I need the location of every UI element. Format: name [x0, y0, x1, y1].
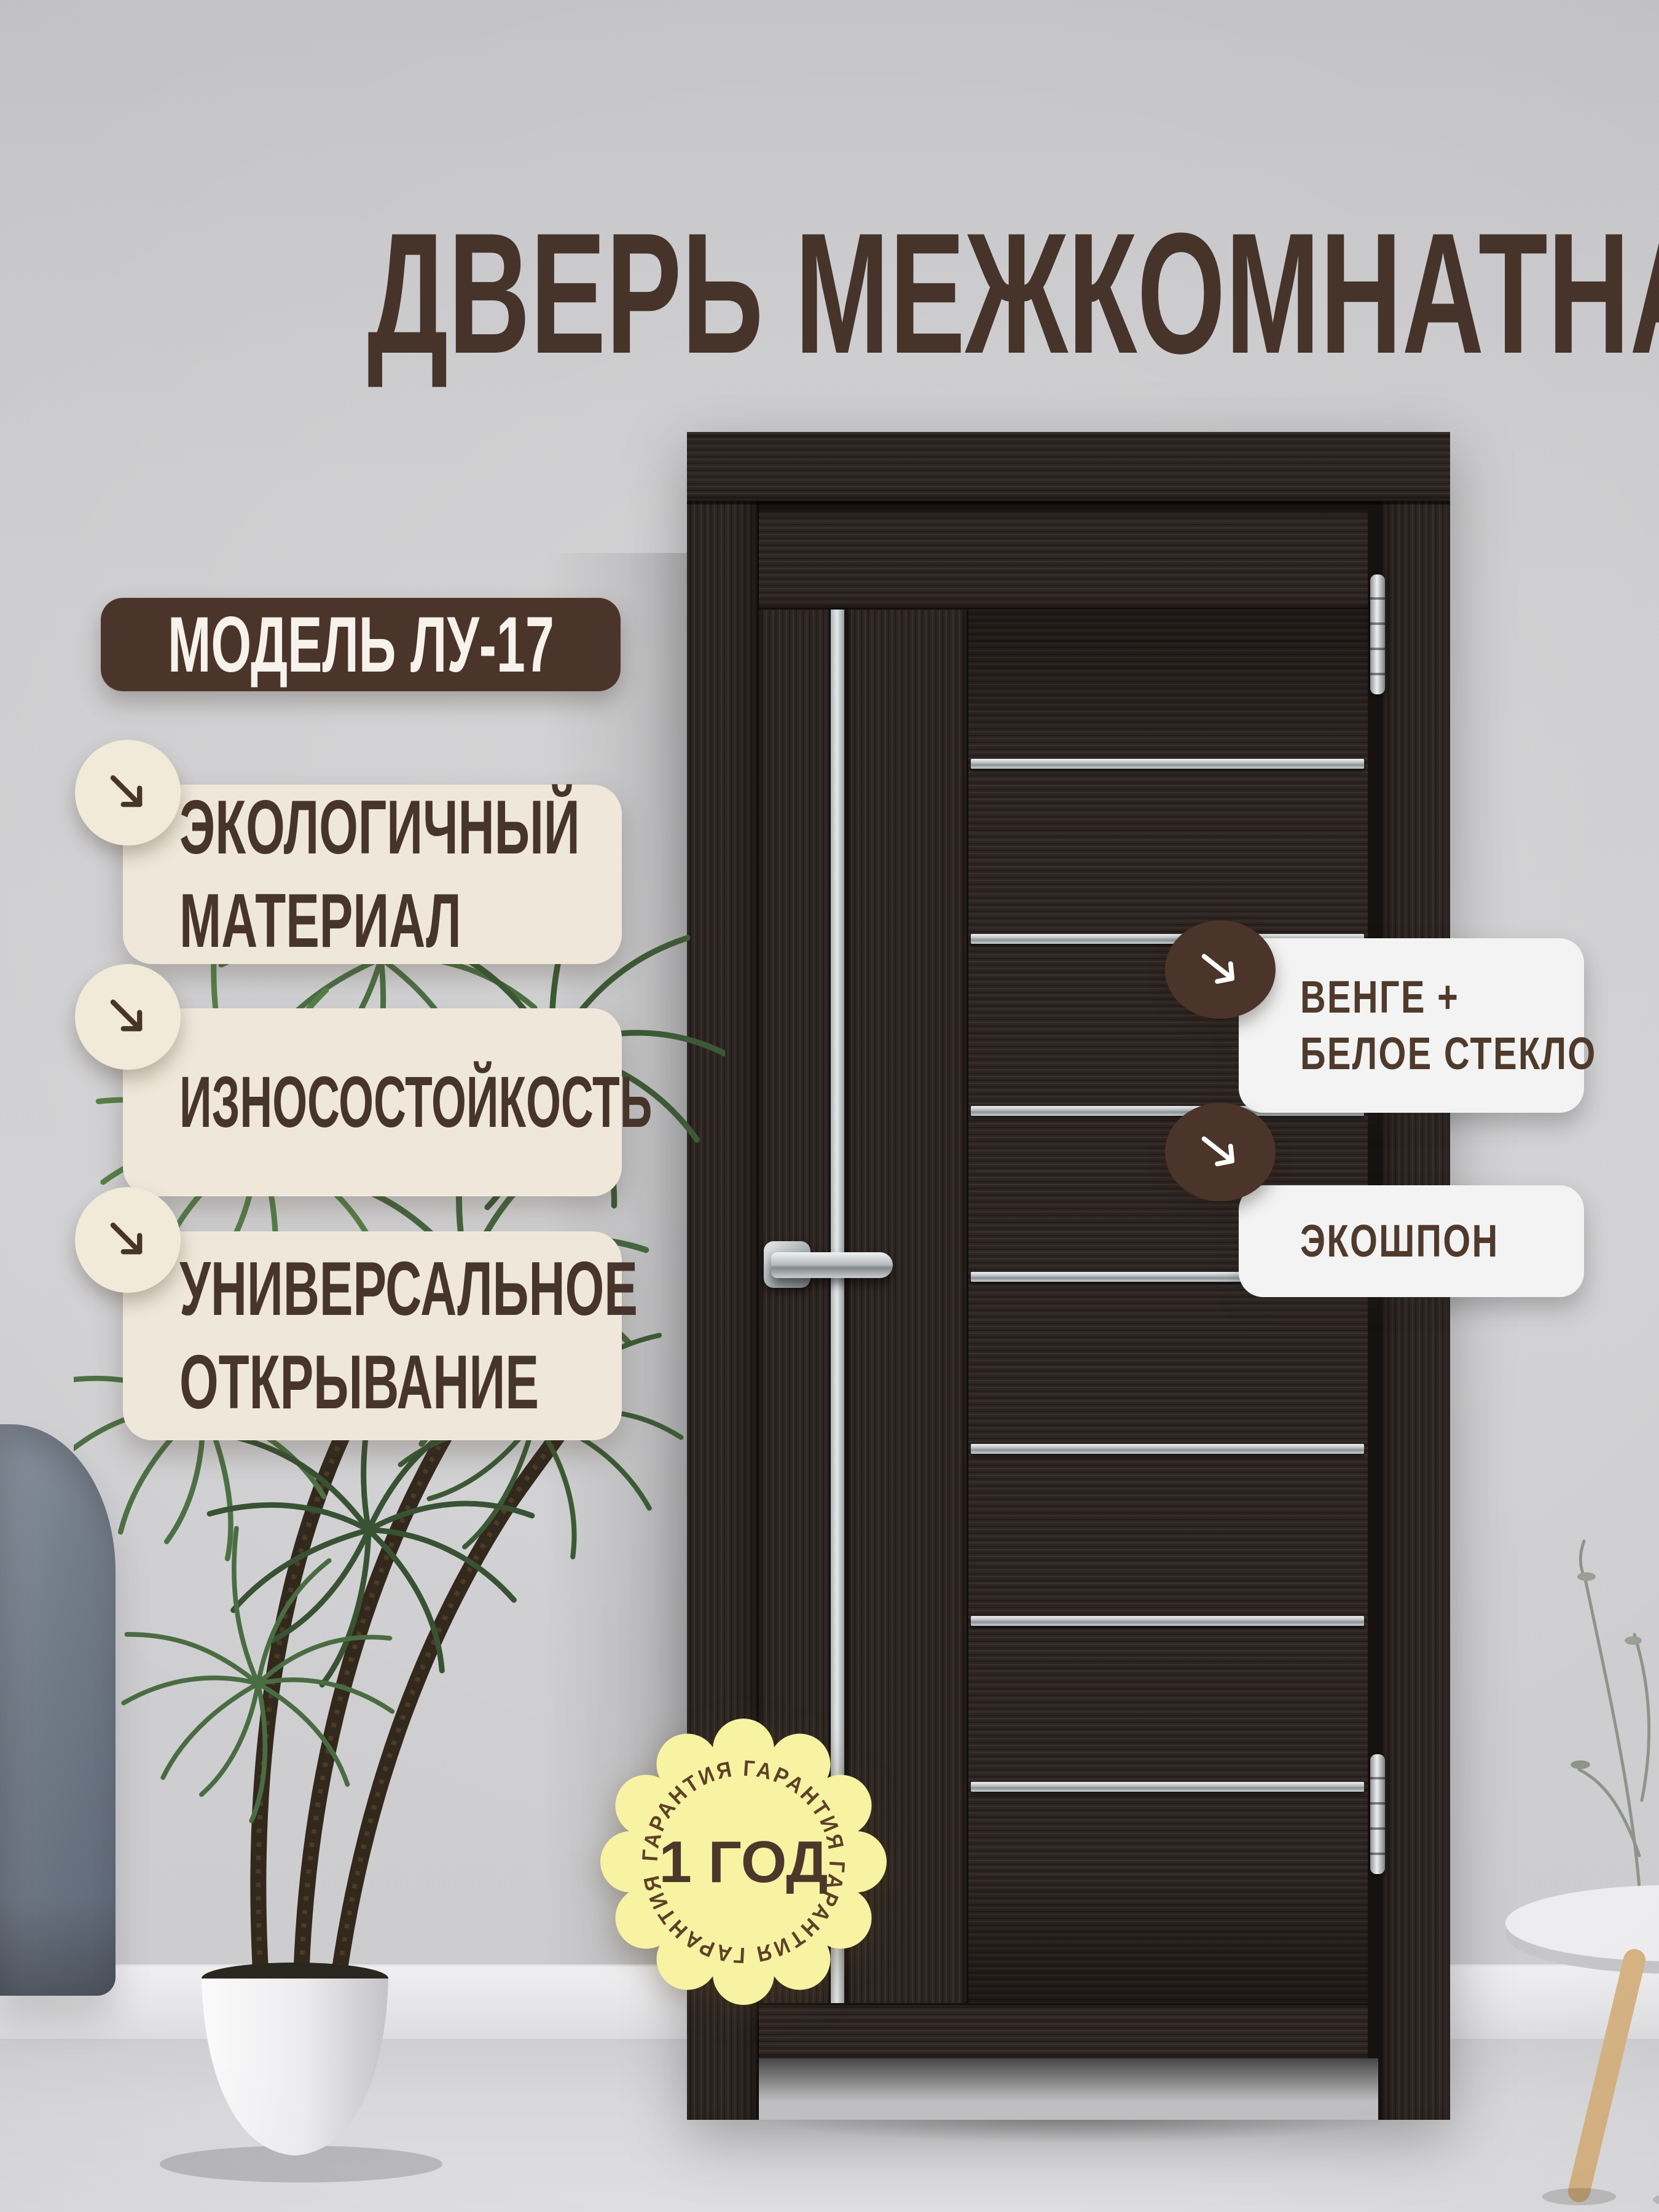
door-panel-section: [968, 610, 1368, 2003]
door-threshold-shadow: [759, 2058, 1378, 2120]
product-banner: ГАРАНТИЯ ГАРАНТИЯ ГАРАНТИЯ ГАРАНТИЯ 1 ГО…: [0, 0, 1659, 2212]
feature-card-wear-resistance: ИЗНОСОСТОЙКОСТЬ: [123, 1008, 622, 1196]
door-top-rail: [759, 510, 1368, 610]
feature-pointer: [75, 964, 181, 1070]
callout-card-ecoveneer: ЭКОШПОН: [1239, 1185, 1584, 1297]
feature-line: МАТЕРИАЛ: [179, 874, 471, 968]
door-glass-strip: [971, 1782, 1364, 1792]
door-bottom-rail: [759, 2003, 1368, 2058]
door-casing-top: [687, 432, 1450, 501]
page-title: ДВЕРЬ МЕЖКОМНАТНАЯ: [0, 208, 1659, 380]
callout-pointer: [1165, 1103, 1276, 1201]
feature-line: ЭКОЛОГИЧНЫЙ: [179, 781, 471, 874]
arrow-down-right-icon: [91, 980, 165, 1054]
feature-card-universal-opening: УНИВЕРСАЛЬНОЕ ОТКРЫВАНИЕ: [123, 1231, 622, 1440]
feature-pointer: [75, 740, 181, 845]
callout-line: ЭКОШПОН: [1300, 1213, 1521, 1269]
door-glass-strip: [971, 1444, 1364, 1454]
door-glass-strip: [971, 1616, 1364, 1626]
callout-pointer: [1165, 920, 1276, 1019]
guarantee-term: 1 ГОД: [659, 1829, 828, 1895]
feature-line: ИЗНОСОСТОЙКОСТЬ: [179, 1056, 453, 1149]
callout-line: ВЕНГЕ +: [1300, 969, 1521, 1026]
door-handle: [771, 1252, 893, 1278]
model-badge: МОДЕЛЬ ЛУ-17: [101, 598, 621, 691]
arrow-down-right-icon: [1183, 933, 1257, 1006]
model-badge-label: МОДЕЛЬ ЛУ-17: [168, 600, 554, 690]
door-hinge-icon: [1370, 1754, 1385, 1874]
door-glass-strip: [971, 759, 1364, 769]
feature-card-eco-material: ЭКОЛОГИЧНЫЙ МАТЕРИАЛ: [123, 785, 622, 964]
arrow-down-right-icon: [91, 756, 165, 829]
arrow-down-right-icon: [1183, 1115, 1257, 1189]
callout-card-finish: ВЕНГЕ + БЕЛОЕ СТЕКЛО: [1239, 938, 1584, 1113]
callout-line: БЕЛОЕ СТЕКЛО: [1300, 1026, 1521, 1082]
door-hinge-icon: [1370, 575, 1385, 694]
arrow-down-right-icon: [91, 1203, 165, 1277]
page-title-text: ДВЕРЬ МЕЖКОМНАТНАЯ: [367, 208, 1659, 380]
dried-plant: [1571, 1541, 1649, 1905]
guarantee-badge: ГАРАНТИЯ ГАРАНТИЯ ГАРАНТИЯ ГАРАНТИЯ 1 ГО…: [599, 1717, 888, 2006]
side-table: [1487, 1536, 1659, 2212]
feature-pointer: [75, 1187, 181, 1293]
feature-line: ОТКРЫВАНИЕ: [179, 1336, 471, 1429]
feature-line: УНИВЕРСАЛЬНОЕ: [179, 1242, 471, 1336]
